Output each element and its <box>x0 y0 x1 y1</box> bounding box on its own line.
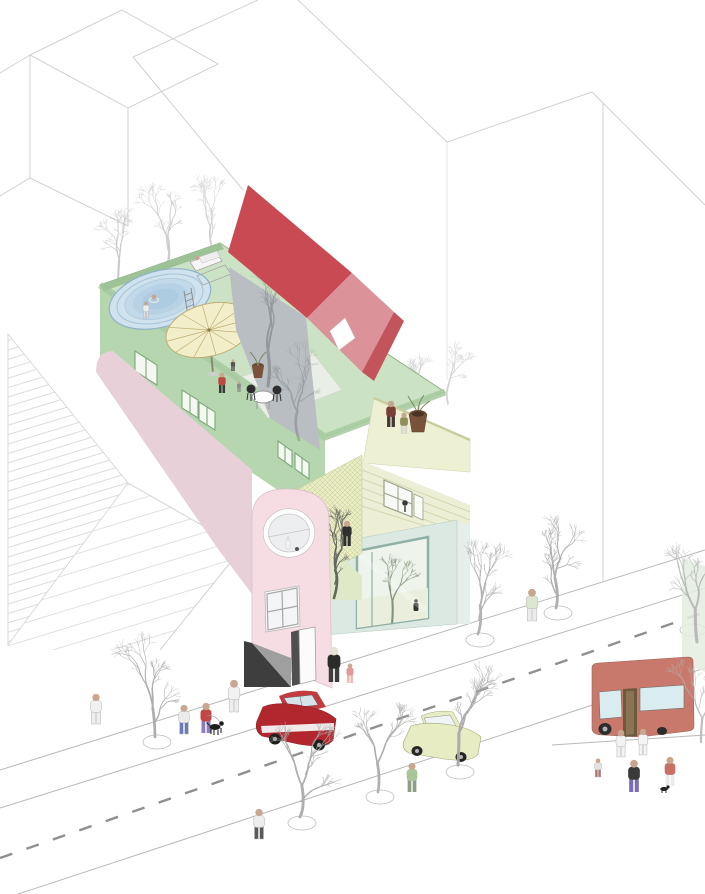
outline-block-roof <box>30 10 218 108</box>
sidewalk-person-blue <box>179 705 190 734</box>
mint-volume-side <box>457 520 470 624</box>
large-glass-window <box>357 537 428 628</box>
curbside-person <box>526 589 538 621</box>
round-table <box>252 391 274 403</box>
illustration-page <box>0 0 705 894</box>
outline-block-3 <box>447 92 705 582</box>
doorway <box>291 630 300 686</box>
sidewalk-person-far-left <box>91 694 102 724</box>
bg-tree-1 <box>94 207 134 282</box>
four-pane-window <box>265 586 300 632</box>
crossing-person-green <box>407 763 418 792</box>
bg-tree-2 <box>133 183 183 263</box>
bg-tree-3 <box>190 173 226 247</box>
far-right-wall-sliver <box>682 558 705 672</box>
small-dog <box>660 785 669 793</box>
street-tree-5 <box>463 538 513 634</box>
chair <box>273 386 282 395</box>
outline-block-2 <box>133 0 447 190</box>
bus-stop-person-rose <box>665 757 676 786</box>
bus <box>592 657 694 737</box>
sidewalk-person-white <box>228 680 240 712</box>
yellow-terrace <box>363 398 470 472</box>
outline-block-edges <box>0 55 128 226</box>
open-shutter <box>414 494 423 520</box>
yellow-car <box>403 711 481 762</box>
round-window <box>264 509 315 557</box>
bus-stop-person-small <box>595 759 602 777</box>
bus-stop-person-dark <box>628 760 640 792</box>
bus-windshield <box>599 690 622 719</box>
entrance-child <box>346 664 353 683</box>
bus-side-window <box>640 685 684 711</box>
architectural-axonometric-illustration <box>0 0 705 894</box>
open-door <box>299 627 316 684</box>
chair <box>247 385 256 394</box>
bg-tree-5 <box>446 341 476 404</box>
